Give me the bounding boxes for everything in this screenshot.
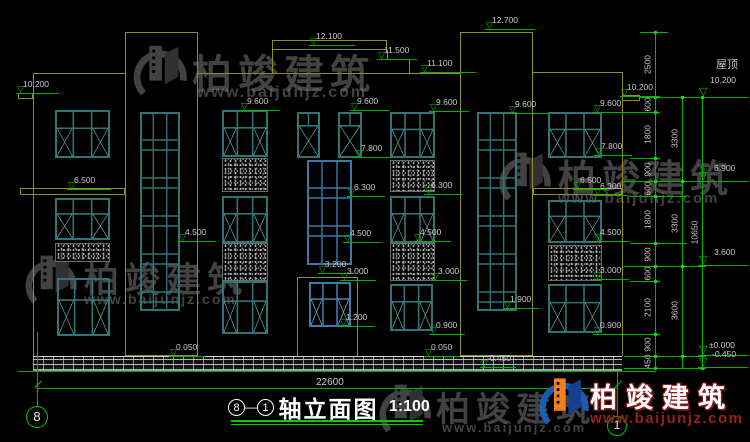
- title-dash: —: [245, 400, 257, 414]
- elevation-label: 7.800: [601, 142, 622, 151]
- elevation-triangle-icon: ▽: [421, 64, 428, 72]
- window: [390, 112, 435, 158]
- elevation-underline: [424, 356, 460, 357]
- dim-chain-label: 2500: [644, 42, 653, 86]
- window: [222, 110, 268, 157]
- elevation-label: 12.700: [492, 16, 518, 25]
- elevation-underline: [16, 93, 58, 94]
- plinth-brick-strip: [33, 356, 622, 371]
- elevation-triangle-icon: ▽: [378, 51, 385, 59]
- elevation-underline: [340, 280, 376, 281]
- elevation-underline: [593, 241, 629, 242]
- elevation-underline: [429, 334, 465, 335]
- dim-tick-dot: [681, 180, 684, 183]
- dim-chain-label: 3300: [671, 117, 680, 161]
- elevation-triangle-icon: ▽: [430, 103, 437, 111]
- elevation-label: 0.050: [176, 343, 197, 352]
- elevation-triangle-icon: ▽: [425, 348, 432, 356]
- elevation-triangle-icon: ▽: [481, 359, 488, 367]
- title-underline-2: [231, 424, 423, 425]
- baijun-logo-icon: [536, 372, 590, 428]
- elevation-label: 4.500: [600, 228, 621, 237]
- dim-tick-dot: [654, 31, 657, 34]
- elevation-underline: [429, 111, 469, 112]
- extension-line: [624, 181, 706, 182]
- elevation-triangle-icon: ▽: [351, 102, 358, 110]
- elevation-label: 6.500: [580, 176, 601, 185]
- spandrel-panel: [55, 243, 110, 262]
- elevation-label: 4.500: [420, 228, 441, 237]
- dim-tick-dot: [654, 111, 657, 114]
- elevation-label: 9.600: [436, 98, 457, 107]
- elevation-label: 9.600: [600, 99, 621, 108]
- right-elevation-label: 10.200: [710, 76, 736, 85]
- window: [140, 112, 180, 311]
- dim-tick-dot: [654, 333, 657, 336]
- elevation-triangle-icon: ▽: [355, 149, 362, 157]
- elevation-underline: [593, 195, 627, 196]
- window: [297, 112, 320, 158]
- elevation-triangle-icon: ▽: [241, 102, 248, 110]
- outline-segment: [272, 50, 273, 73]
- elevation-underline: [67, 189, 111, 190]
- watermark-colored-url: www.baijunjz.com: [590, 410, 743, 427]
- window: [390, 284, 433, 331]
- window: [548, 112, 602, 158]
- window: [307, 160, 352, 265]
- elevation-underline: [593, 112, 633, 113]
- elevation-triangle-icon: ▽: [432, 272, 439, 280]
- elevation-underline: [431, 280, 467, 281]
- right-elevation-triangle-icon: ▽: [699, 172, 707, 180]
- elevation-underline: [169, 356, 205, 357]
- elevation-underline: [350, 110, 390, 111]
- elevation-underline: [343, 242, 381, 243]
- elevation-label: 4.500: [350, 229, 371, 238]
- outline-segment: [33, 73, 125, 74]
- spandrel-panel: [222, 243, 268, 281]
- elevation-triangle-icon: ▽: [319, 265, 326, 273]
- right-elevation-triangle-icon: ▽: [699, 88, 707, 96]
- dim-tick-dot: [654, 280, 657, 283]
- window: [222, 281, 268, 334]
- elevation-underline: [178, 241, 216, 242]
- dim-tick-dot: [681, 355, 684, 358]
- title-text: 轴立面图: [278, 396, 378, 422]
- elevation-underline: [594, 155, 632, 156]
- title-axis-circle-1: 1: [257, 399, 274, 416]
- elevation-label: -0.450: [487, 354, 511, 363]
- drawing-title: 8—1 轴立面图 1:100: [228, 390, 430, 424]
- extension-line: [624, 266, 706, 267]
- elevation-label: 1.200: [346, 313, 367, 322]
- dim-tick-dot: [654, 180, 657, 183]
- outline-segment: [198, 73, 460, 74]
- roof-label: 屋顶: [716, 61, 738, 70]
- elevation-triangle-icon: ▽: [594, 271, 601, 279]
- elevation-underline: [424, 194, 462, 195]
- elevation-triangle-icon: ▽: [344, 234, 351, 242]
- right-elevation-line: [698, 265, 748, 266]
- right-elevation-label: -0.450: [712, 350, 736, 359]
- outline-segment: [409, 59, 410, 73]
- elevation-triangle-icon: ▽: [414, 233, 421, 241]
- window: [57, 278, 110, 336]
- elevation-label: 11.100: [427, 59, 452, 68]
- outline-segment: [33, 73, 34, 356]
- elevation-underline: [593, 279, 629, 280]
- elevation-triangle-icon: ▽: [574, 181, 581, 189]
- dim-chain-label: 3300: [671, 201, 680, 245]
- elevation-triangle-icon: ▽: [594, 233, 601, 241]
- elevation-label: 12.100: [316, 32, 342, 41]
- right-elevation-triangle-icon: ▽: [699, 358, 707, 366]
- elevation-label: 10.200: [23, 80, 49, 89]
- dim-tick-dot: [654, 242, 657, 245]
- elevation-triangle-icon: ▽: [594, 104, 601, 112]
- elevation-label: 0.050: [431, 343, 452, 352]
- elevation-underline: [485, 29, 535, 30]
- watermark-url-text: www.baijunjz.com: [197, 84, 367, 102]
- elevation-triangle-icon: ▽: [425, 186, 432, 194]
- dim-tick-dot: [654, 195, 657, 198]
- right-elevation-triangle-icon: ▽: [699, 346, 707, 354]
- right-elevation-line: [698, 97, 748, 98]
- elevation-label: 10.200: [627, 83, 653, 92]
- elevation-triangle-icon: ▽: [348, 188, 355, 196]
- elevation-label: 7.800: [361, 144, 382, 153]
- window: [55, 110, 110, 158]
- window: [55, 198, 110, 240]
- elevation-underline: [508, 113, 548, 114]
- cad-elevation-drawing: 柏竣建筑www.baijunjz.com柏竣建筑www.baijunjz.com…: [0, 0, 750, 442]
- elevation-triangle-icon: ▽: [621, 88, 628, 96]
- elevation-underline: [339, 326, 375, 327]
- dim-chain-line: [682, 97, 683, 368]
- title-scale: 1:100: [389, 398, 430, 415]
- elevation-label: 6.300: [600, 182, 621, 191]
- elevation-triangle-icon: ▽: [594, 187, 601, 195]
- window: [222, 196, 268, 243]
- elevation-underline: [480, 367, 516, 368]
- elevation-label: 3.000: [347, 267, 368, 276]
- elevation-label: 1.900: [510, 295, 531, 304]
- elevation-label: 9.600: [357, 97, 378, 106]
- elevation-triangle-icon: ▽: [68, 181, 75, 189]
- axis-bubble-8: 8: [26, 406, 48, 428]
- elevation-label: 3.000: [600, 266, 621, 275]
- dim-tick-dot: [654, 265, 657, 268]
- dim-chain-label: 10650: [691, 210, 700, 254]
- elevation-triangle-icon: ▽: [486, 21, 493, 29]
- elevation-triangle-icon: ▽: [310, 37, 317, 45]
- elevation-underline: [377, 59, 417, 60]
- extension-line: [630, 196, 687, 197]
- elevation-underline: [420, 72, 476, 73]
- elevation-triangle-icon: ▽: [430, 326, 437, 334]
- dim-tick-dot: [654, 367, 657, 370]
- right-elevation-line: [698, 367, 748, 368]
- elevation-label: 6.300: [431, 181, 452, 190]
- bottom-total-dimension: 22600: [316, 378, 344, 387]
- extension-line: [624, 368, 706, 369]
- elevation-underline: [240, 110, 280, 111]
- title-axis-circle-8: 8: [228, 399, 245, 416]
- right-elevation-triangle-icon: ▽: [699, 256, 707, 264]
- elevation-underline: [413, 241, 451, 242]
- elevation-label: 6.300: [354, 183, 375, 192]
- elevation-underline: [503, 308, 539, 309]
- green-line: [37, 388, 617, 389]
- spandrel-panel: [390, 243, 435, 281]
- elevation-underline: [354, 157, 392, 158]
- elevation-underline: [593, 334, 629, 335]
- dim-chain-line: [702, 97, 703, 368]
- elevation-underline: [620, 96, 660, 97]
- elevation-label: 3.200: [325, 260, 346, 269]
- elevation-label: 9.600: [515, 100, 536, 109]
- elevation-triangle-icon: ▽: [504, 300, 511, 308]
- spandrel-panel: [222, 158, 268, 192]
- elevation-label: 9.600: [247, 97, 268, 106]
- dim-tick-dot: [654, 355, 657, 358]
- elevation-underline: [347, 196, 385, 197]
- right-elevation-line: [698, 181, 748, 182]
- outline-segment: [533, 72, 622, 73]
- green-line: [37, 332, 38, 406]
- elevation-label: 0.900: [436, 321, 457, 330]
- dim-tick-dot: [681, 96, 684, 99]
- elevation-triangle-icon: ▽: [594, 326, 601, 334]
- elevation-triangle-icon: ▽: [341, 272, 348, 280]
- outline-segment: [622, 72, 623, 356]
- elevation-triangle-icon: ▽: [17, 85, 24, 93]
- window: [477, 112, 517, 311]
- elevation-label: 0.900: [600, 321, 621, 330]
- elevation-label: 6.500: [74, 176, 95, 185]
- dim-chain-line: [655, 32, 656, 368]
- elevation-label: 11.500: [384, 46, 409, 55]
- watermark-colored: [536, 372, 590, 433]
- elevation-underline: [309, 45, 355, 46]
- right-elevation-label: 6.900: [714, 164, 735, 173]
- elevation-triangle-icon: ▽: [170, 348, 177, 356]
- right-elevation-label: 3.600: [714, 248, 735, 257]
- elevation-triangle-icon: ▽: [179, 233, 186, 241]
- elevation-triangle-icon: ▽: [509, 105, 516, 113]
- dim-chain-label: 3600: [671, 289, 680, 333]
- extension-line: [624, 356, 706, 357]
- elevation-label: 4.500: [185, 228, 206, 237]
- elevation-triangle-icon: ▽: [340, 318, 347, 326]
- dim-tick-dot: [654, 157, 657, 160]
- title-underline: [231, 420, 423, 422]
- dim-tick-dot: [681, 265, 684, 268]
- elevation-triangle-icon: ▽: [595, 147, 602, 155]
- elevation-label: 3.000: [438, 267, 459, 276]
